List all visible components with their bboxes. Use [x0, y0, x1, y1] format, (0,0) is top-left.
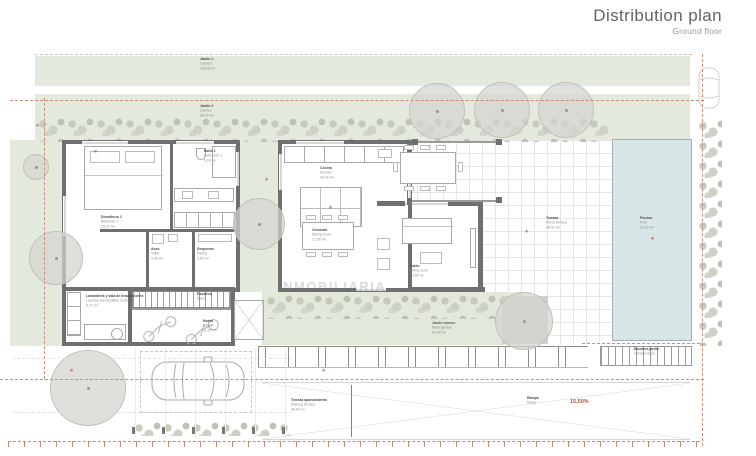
hedge-strip-right: [696, 118, 722, 346]
tree: [409, 83, 465, 139]
plant-marker-icon: ✳: [265, 178, 269, 183]
partition-stairs-bikes: [132, 308, 231, 310]
label-kitchen: Cocina Kitchen 16,40 m²: [320, 166, 334, 180]
dimension-line-vertical: [351, 385, 352, 437]
pergola-fence-row: [258, 346, 588, 368]
dining-chair: [338, 215, 348, 220]
living-north-wall-a: [377, 201, 405, 206]
setback-line-left: [44, 98, 45, 379]
sofa-back-line: [403, 226, 453, 227]
plant-marker-icon: ✳: [329, 206, 333, 211]
bathroom-window: [176, 141, 214, 144]
porch-chair: [393, 162, 398, 172]
sink-2: [208, 191, 219, 199]
entrance-porch: [234, 300, 264, 340]
partition-pantry: [192, 232, 195, 290]
armchair-2: [377, 258, 390, 270]
porch-chair: [436, 145, 446, 150]
room-area: 32,00 m²: [640, 225, 654, 230]
dining-chair: [306, 215, 316, 220]
plot-line-right: [702, 54, 703, 446]
room-area: 48,50 m²: [546, 225, 567, 230]
porch-column-3: [496, 197, 502, 203]
watermark: INMOBILIARIA: [278, 279, 386, 294]
washing-machine-icon: [111, 328, 123, 340]
tree: [50, 350, 126, 426]
plant-marker-icon: ✳: [525, 230, 529, 235]
tree: [474, 82, 530, 138]
label-bathroom: Baño 1 Bathroom 1 6,10 m²: [204, 149, 222, 163]
label-pool: Piscina Pool 32,00 m²: [640, 216, 654, 230]
dining-chair: [322, 215, 332, 220]
tree: [495, 292, 553, 350]
porch-chair: [404, 186, 414, 191]
porch-chair: [458, 162, 463, 172]
room-area: 3,60 m²: [197, 256, 214, 261]
dining-chair: [338, 252, 348, 257]
dimension-tick-line: [8, 441, 700, 447]
room-sub: Ramp: [527, 401, 539, 406]
label-ramp-slope: 15,50%: [570, 398, 589, 405]
partition-bed-bath: [170, 144, 173, 232]
label-stairs: Escalera Stairs: [197, 292, 211, 301]
blanket-line: [85, 175, 163, 176]
sofa: [402, 218, 452, 244]
label-living: Salón Living room 24,60 m²: [410, 264, 428, 278]
plant-marker-icon: ✳: [322, 369, 326, 374]
laundry-counter: [84, 324, 126, 340]
tree: [233, 198, 285, 250]
tv-bench: [470, 228, 476, 268]
plant-marker-icon: ✳: [70, 369, 74, 374]
sink-1: [182, 191, 193, 199]
living-south-wall: [408, 287, 485, 292]
living-east-wall: [478, 201, 483, 292]
dining-chair: [306, 252, 316, 257]
room-area: 6,10 m²: [204, 158, 222, 163]
tree: [29, 231, 83, 285]
room-area: 17,30 m²: [312, 237, 331, 242]
porch-beam-north: [412, 141, 502, 143]
pillow-right: [125, 151, 155, 163]
kitchen-sink: [378, 149, 392, 158]
laundry-closet: [67, 292, 81, 336]
room-sub: Garden steps: [634, 352, 659, 357]
ramp-slope-value: 15,50%: [570, 399, 589, 405]
partition-toilet: [146, 232, 149, 290]
room-area: 11,20 m²: [203, 328, 217, 333]
room-sub: Stairs: [197, 297, 211, 302]
tree: [538, 82, 594, 138]
porch-chair: [420, 145, 430, 150]
label-garden-b: Jardín 2 Garden 96,00 m²: [200, 104, 214, 118]
dining-chair: [322, 252, 332, 257]
room-area: 118,00 m²: [200, 66, 216, 71]
label-toilet: Aseo Toilet 2,90 m²: [151, 247, 163, 261]
partition-hall: [100, 229, 238, 232]
kitchen-west-window: [279, 154, 282, 190]
closet-row: [174, 212, 236, 228]
label-bedroom: Dormitorio 1 Bedroom 1 15,20 m²: [101, 215, 122, 229]
label-pantry: Despensa Pantry 3,60 m²: [197, 247, 214, 261]
room-area: 24,60 m²: [410, 273, 428, 278]
courtyard-window: [236, 152, 239, 186]
label-laundry: Lavandería y sala de instalaciones Laund…: [86, 294, 143, 308]
plot-line-top: [35, 54, 692, 55]
porch-column-2: [496, 139, 502, 145]
room-area: 96,00 m²: [200, 113, 214, 118]
setback-line-top: [10, 100, 704, 101]
porch-chair: [404, 145, 414, 150]
pantry-shelf: [198, 234, 232, 242]
coffee-table: [420, 252, 442, 264]
street-car-top-view: [696, 66, 722, 110]
room-area: 42,00 m²: [432, 330, 455, 335]
label-garden-a: Jardín 1 Garden 118,00 m²: [200, 57, 216, 71]
bedroom-window: [82, 141, 128, 144]
porch-table: [400, 152, 456, 184]
kitchen-window: [296, 141, 344, 144]
bed: [84, 146, 162, 210]
label-ramp: Rampa Ramp: [527, 396, 539, 405]
label-back-garden: Jardín trasero Back garden 42,00 m²: [432, 321, 455, 335]
plant-marker-icon: ✳: [36, 124, 40, 129]
garden-strip-top: [35, 56, 690, 86]
staircase: [132, 291, 231, 308]
bedroom-west-window: [63, 196, 66, 236]
aseo-basin: [152, 234, 164, 244]
room-area: 2,90 m²: [151, 256, 163, 261]
room-area: 16,40 m²: [320, 175, 334, 180]
plant-marker-icon: ✳: [94, 150, 98, 155]
aseo-wc: [168, 234, 178, 242]
porch-chair: [420, 186, 430, 191]
label-parking: Terraza aparcamiento Parking terrace 80,…: [291, 398, 327, 412]
room-area: 15,20 m²: [101, 224, 122, 229]
room-area: 8,70 m²: [86, 303, 143, 308]
page-subtitle: Ground floor: [672, 26, 722, 36]
floor-plan-canvas: Distribution plan Ground floor: [0, 0, 756, 456]
setback-line-bottom: [0, 379, 704, 380]
armchair-1: [377, 238, 390, 250]
room-area: 80,00 m²: [291, 407, 327, 412]
label-terrace: Terraza Porch terrace 48,50 m²: [546, 216, 567, 230]
label-dining: Comedor Dining room 17,30 m²: [312, 228, 331, 242]
porch-beam-south: [412, 200, 502, 202]
setback-line-pool: [582, 343, 700, 344]
tree: [23, 154, 49, 180]
page-title: Distribution plan: [593, 6, 722, 26]
hedge-back-garden: [264, 293, 520, 319]
label-bikes: Motos Bikes 11,20 m²: [203, 319, 217, 333]
plant-marker-icon: ✳: [651, 237, 655, 242]
porch-chair: [436, 186, 446, 191]
label-garden-steps: Escalera jardín Garden steps: [634, 347, 659, 356]
car-top-view: [146, 352, 250, 410]
